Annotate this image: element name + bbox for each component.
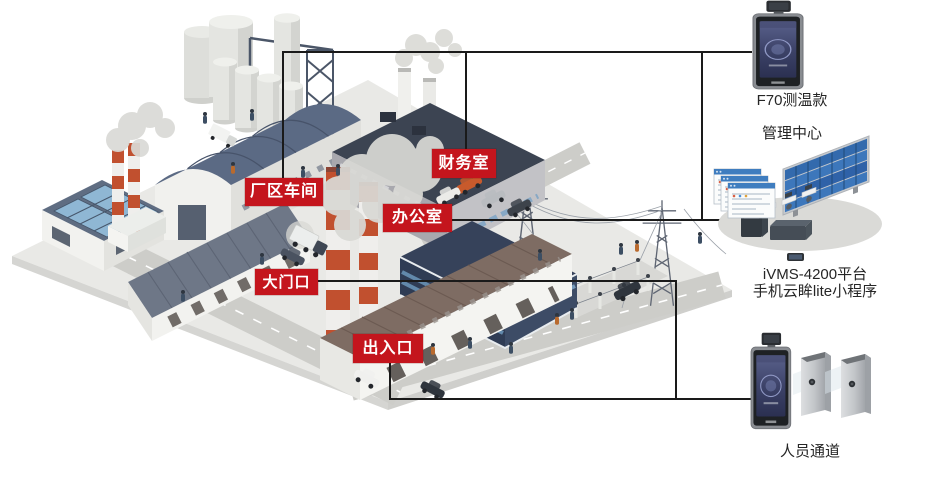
caption-mini-program: 手机云眸lite小程序 <box>725 283 905 300</box>
factory-illustration <box>0 0 939 477</box>
site-label-finance-office: 财务室 <box>432 149 496 178</box>
gate-wing <box>793 371 801 395</box>
face-terminal <box>751 333 791 429</box>
small-chimneys <box>106 102 175 252</box>
site-label-workshop: 厂区车间 <box>245 178 323 206</box>
caption-personnel-channel: 人员通道 <box>740 443 880 460</box>
smoke <box>106 102 175 157</box>
software-windows <box>714 169 775 218</box>
caption-management-center: 管理中心 <box>722 125 862 142</box>
caption-f70-model: F70测温款 <box>722 92 862 109</box>
management-platform-image <box>714 136 882 261</box>
f70-terminal-image <box>753 1 803 89</box>
site-label-main-gate: 大门口 <box>255 269 318 295</box>
site-label-entrance-exit: 出入口 <box>353 334 423 363</box>
diagram-canvas: 厂区车间 财务室 办公室 大门口 出入口 F70测温款 管理中心 iVMS-42… <box>0 0 939 477</box>
personnel-channel-image <box>751 333 871 429</box>
turnstile <box>841 354 871 418</box>
site-label-office: 办公室 <box>383 204 452 232</box>
caption-ivms-platform: iVMS-4200平台 <box>725 266 905 283</box>
